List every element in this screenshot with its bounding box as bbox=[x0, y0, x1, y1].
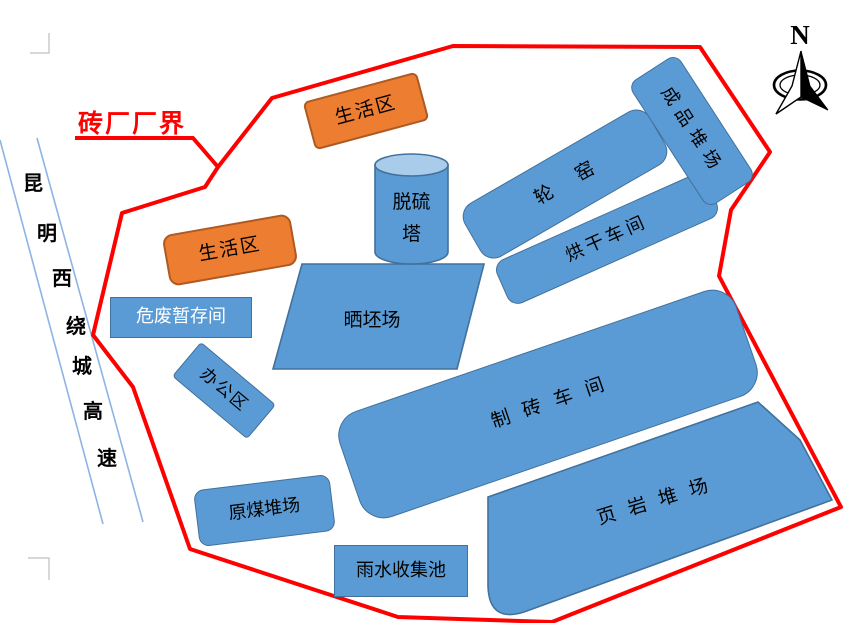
compass-rose-icon bbox=[774, 51, 828, 114]
road-char: 高 bbox=[82, 401, 104, 423]
road-char: 西 bbox=[51, 268, 73, 290]
page-corner-mark-bottom bbox=[28, 558, 49, 580]
site-plan-canvas: 砖厂厂界 N 昆 明 西 绕 城 高 速 生活区 生活区 危废暂存间 办公区 轮… bbox=[0, 0, 844, 623]
living-area-top-label: 生活区 bbox=[333, 92, 400, 129]
hazardous-waste-room-label: 危废暂存间 bbox=[136, 307, 226, 328]
boundary-label-leader-line bbox=[75, 138, 218, 167]
desulfurization-tower-label-line2: 塔 bbox=[371, 218, 452, 246]
compass-north-label: N bbox=[782, 20, 818, 51]
road-char: 昆 bbox=[22, 173, 44, 195]
road-line-left[interactable] bbox=[0, 140, 103, 524]
living-area-left-label: 生活区 bbox=[197, 234, 263, 266]
road-char: 绕 bbox=[65, 316, 87, 338]
road-char: 城 bbox=[71, 356, 93, 378]
road-char: 明 bbox=[36, 223, 58, 245]
shape-desulfurization-tower-body[interactable] bbox=[375, 165, 448, 264]
rainwater-pool-label: 雨水收集池 bbox=[356, 561, 446, 582]
raw-coal-yard-label: 原煤堆场 bbox=[228, 496, 302, 525]
shape-rainwater-pool[interactable]: 雨水收集池 bbox=[334, 545, 468, 597]
factory-boundary-label: 砖厂厂界 bbox=[78, 104, 186, 140]
brick-drying-field-label: 晒坯场 bbox=[312, 303, 432, 333]
road-char: 速 bbox=[96, 448, 118, 470]
brick-workshop-label: 制砖车间 bbox=[475, 370, 620, 438]
desulfurization-tower-label-line1: 脱硫 bbox=[371, 186, 452, 214]
page-corner-mark-top bbox=[30, 33, 49, 53]
shape-hazardous-waste-room[interactable]: 危废暂存间 bbox=[110, 297, 252, 338]
shape-desulfurization-tower-top bbox=[375, 154, 448, 176]
